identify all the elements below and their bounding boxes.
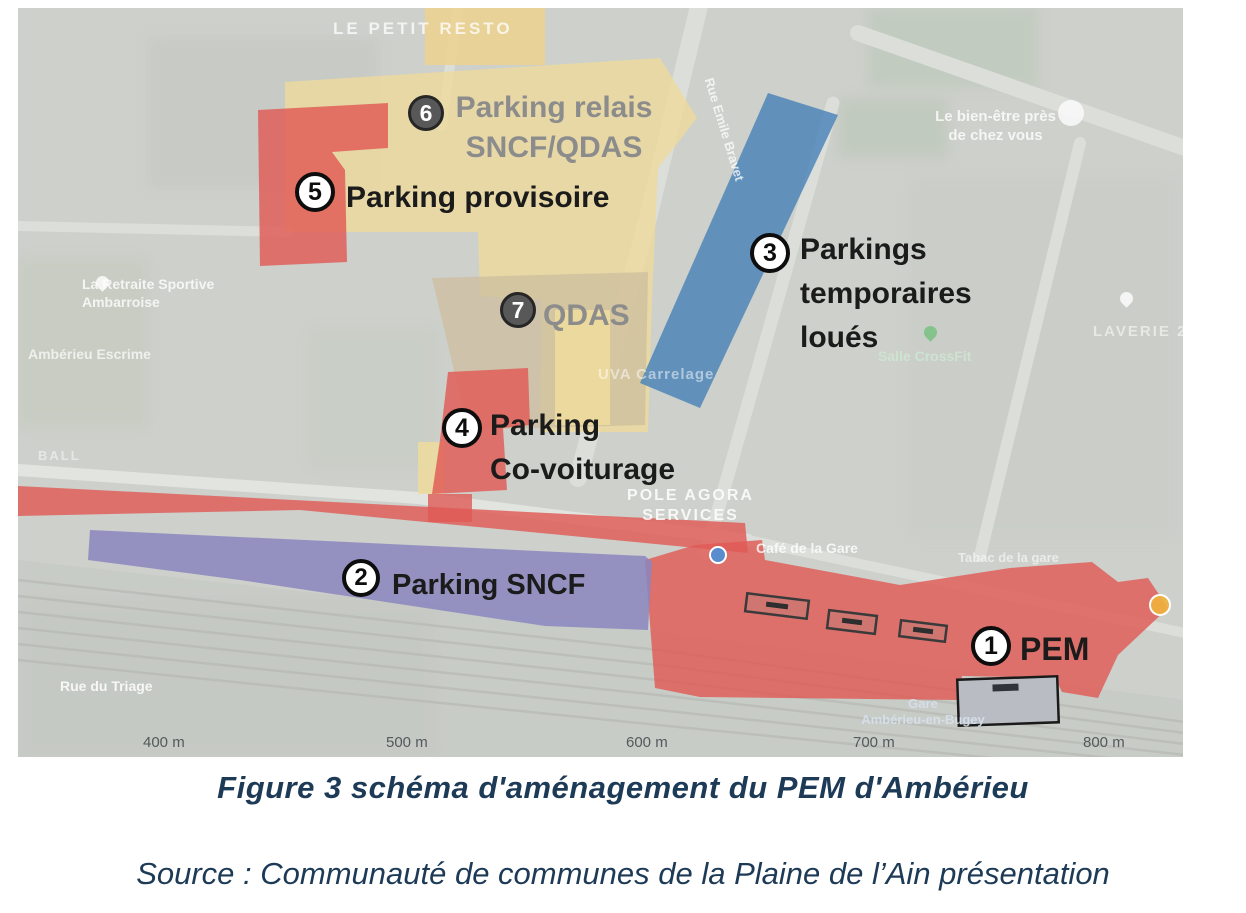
annotation-badge-4: 4 xyxy=(442,408,482,448)
street-label-rue-du-triage: Rue du Triage xyxy=(60,678,153,696)
annotation-badge-7: 7 xyxy=(500,292,536,328)
annotation-badge-2: 2 xyxy=(342,559,380,597)
annotation-pem: PEM xyxy=(1020,628,1089,671)
place-label-retraite-sportive: La Retraite Sportive Ambarroise xyxy=(82,276,214,311)
annotation-badge-5: 5 xyxy=(295,172,335,212)
scale-label-700m: 700 m xyxy=(853,734,895,751)
place-label-petit-resto: LE PETIT RESTO xyxy=(333,18,513,39)
scale-label-800m: 800 m xyxy=(1083,734,1125,751)
map-figure: LE PETIT RESTO Rue Emile Bravet Le bien-… xyxy=(18,8,1183,757)
annotation-badge-3: 3 xyxy=(750,233,790,273)
annotation-badge-1: 1 xyxy=(971,626,1011,666)
scale-label-400m: 400 m xyxy=(143,734,185,751)
place-label-gare-amberieu: Gare Ambérieu-en-Bugey xyxy=(818,696,1028,729)
poi-blue-dot xyxy=(710,547,726,563)
annotation-parkings-temporaires: Parkings temporaires loués xyxy=(800,228,972,360)
annotation-parking-relais: Parking relais SNCF/QDAS xyxy=(446,88,662,168)
place-label-bien-etre: Le bien-être près de chez vous xyxy=(908,108,1083,146)
place-label-tabac-gare: Tabac de la gare xyxy=(958,550,1059,566)
figure-caption: Figure 3 schéma d'aménagement du PEM d'A… xyxy=(0,770,1246,806)
place-label-crossfit: Salle CrossFit xyxy=(878,348,971,366)
place-label-laverie: LAVERIE 2 xyxy=(1093,323,1183,342)
place-label-carrelage: UVA Carrelage xyxy=(598,366,714,385)
scale-label-600m: 600 m xyxy=(626,734,668,751)
annotation-qdas: QDAS xyxy=(543,294,630,337)
place-label-pole-agora: POLE AGORA SERVICES xyxy=(583,486,798,526)
scale-label-500m: 500 m xyxy=(386,734,428,751)
annotation-badge-6: 6 xyxy=(408,95,444,131)
annotation-parking-provisoire: Parking provisoire xyxy=(346,176,609,219)
place-label-ball: BALL xyxy=(38,448,81,464)
annotation-parking-sncf: Parking SNCF xyxy=(392,564,585,607)
poi-yellow-dot xyxy=(1150,595,1170,615)
place-label-cafe-gare: Café de la Gare xyxy=(756,540,858,558)
annotation-parking-covoiturage: Parking Co-voiturage xyxy=(490,404,675,492)
document-page: LE PETIT RESTO Rue Emile Bravet Le bien-… xyxy=(0,0,1246,913)
figure-source: Source : Communauté de communes de la Pl… xyxy=(0,856,1246,892)
place-label-escrime: Ambérieu Escrime xyxy=(28,346,151,364)
